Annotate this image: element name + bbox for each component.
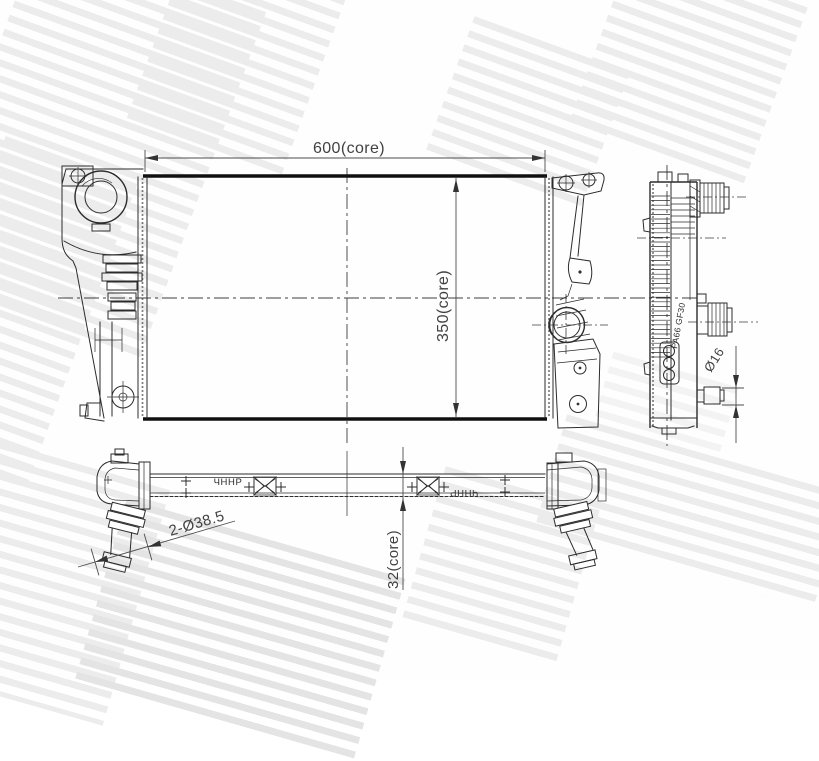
dim-core-depth: 32(core) — [385, 447, 406, 590]
outlet-pipe-label: Ø16 — [701, 345, 727, 375]
front-view — [58, 166, 700, 443]
dim-core-width: 600(core) — [145, 140, 545, 172]
material-marking: PA66 GF30 — [669, 302, 687, 350]
radiator-drawing: 600(core) 350(core) — [0, 0, 819, 679]
core-depth-label: 32(core) — [385, 530, 402, 589]
side-filler-cap — [690, 180, 729, 217]
dim-core-height: 350(core) — [435, 178, 459, 417]
stamp-text-right: ЧННР — [450, 487, 479, 498]
dim-inlet-pipes: 2-Ø38.5 — [78, 507, 235, 575]
core-width-label: 600(core) — [313, 140, 385, 157]
right-inlet-pipe — [547, 453, 606, 572]
drawing-canvas: 600(core) 350(core) — [0, 0, 819, 679]
bowtie-clip — [417, 477, 439, 495]
stamp-text-left: ЧННР — [214, 477, 243, 488]
left-tank — [62, 166, 143, 421]
side-outlet-pipe — [697, 387, 724, 404]
right-top-bracket — [552, 172, 604, 340]
bowtie-clip — [254, 477, 276, 495]
side-view: PA66 GF30 — [637, 165, 758, 446]
bottom-view: ЧННР ЧННР — [95, 449, 606, 574]
inlet-pipes-label: 2-Ø38.5 — [167, 507, 226, 539]
right-lower-bracket — [554, 339, 600, 428]
side-port — [697, 294, 732, 336]
core-height-label: 350(core) — [435, 270, 452, 342]
dim-outlet-pipe: Ø16 — [701, 345, 744, 443]
